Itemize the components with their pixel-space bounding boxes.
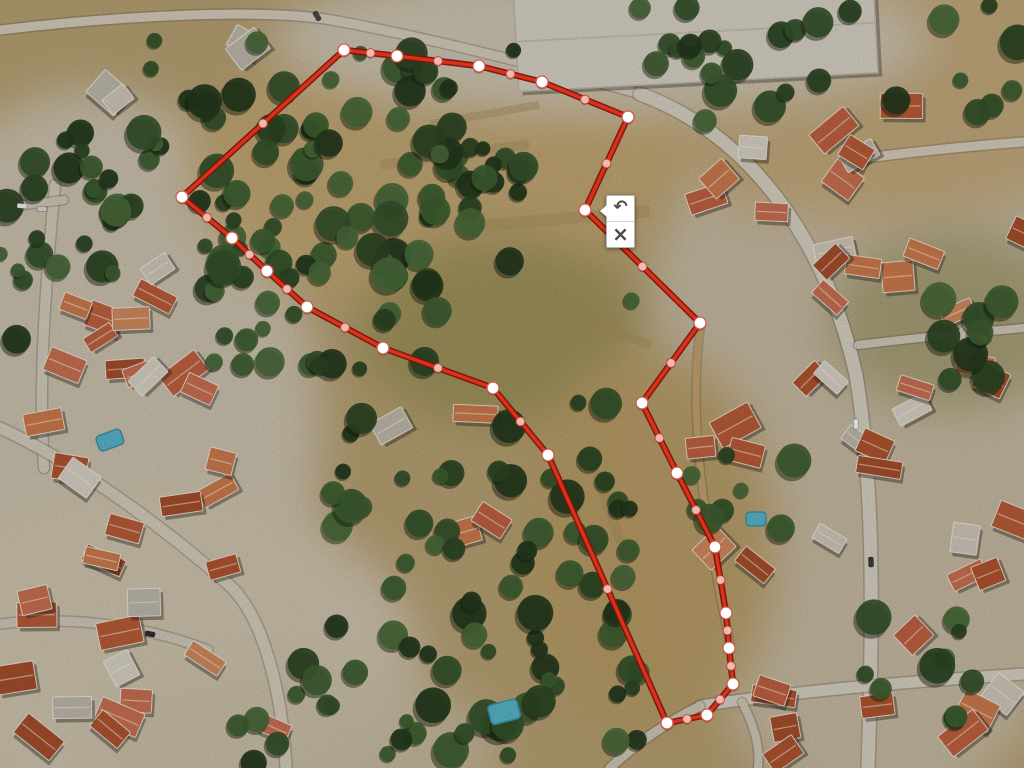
midpoint-handle[interactable] [434, 364, 443, 373]
midpoint-handle[interactable] [283, 285, 292, 294]
undo-arrow-icon: ↶ [613, 199, 627, 216]
close-icon: × [612, 224, 629, 244]
midpoint-handle[interactable] [366, 49, 375, 58]
vertex-handle[interactable] [261, 265, 273, 277]
vertex-handle[interactable] [536, 76, 548, 88]
midpoint-handle[interactable] [581, 95, 590, 104]
undo-button[interactable]: ↶ [607, 196, 634, 221]
vertex-handle[interactable] [226, 232, 238, 244]
vertex-handle[interactable] [701, 709, 713, 721]
aerial-imagery [0, 0, 1024, 768]
delete-vertex-button[interactable]: × [607, 222, 634, 247]
vertex-handle[interactable] [338, 44, 350, 56]
vertex-handle[interactable] [579, 204, 591, 216]
midpoint-handle[interactable] [434, 57, 443, 66]
vertex-handle[interactable] [473, 60, 485, 72]
vertex-handle[interactable] [176, 191, 188, 203]
vertex-handle[interactable] [661, 717, 673, 729]
vertex-handle[interactable] [377, 342, 389, 354]
midpoint-handle[interactable] [506, 70, 515, 79]
midpoint-handle[interactable] [341, 323, 350, 332]
toolbar-pointer-arrow [600, 205, 607, 217]
midpoint-handle[interactable] [638, 262, 647, 271]
vertex-handle[interactable] [487, 382, 499, 394]
vertex-handle[interactable] [723, 642, 735, 654]
vertex-toolbar: ↶ × [606, 195, 635, 248]
vertex-handle[interactable] [720, 607, 732, 619]
vertex-handle[interactable] [709, 541, 721, 553]
imagery-noise-texture [0, 0, 1024, 768]
midpoint-handle[interactable] [716, 576, 725, 585]
vertex-handle[interactable] [301, 301, 313, 313]
midpoint-handle[interactable] [692, 506, 701, 515]
vertex-handle[interactable] [622, 111, 634, 123]
vertex-handle[interactable] [636, 397, 648, 409]
vertex-handle[interactable] [727, 678, 739, 690]
midpoint-handle[interactable] [603, 585, 612, 594]
midpoint-handle[interactable] [655, 434, 664, 443]
midpoint-handle[interactable] [259, 119, 268, 128]
satellite-map-viewport[interactable]: ↶ × [0, 0, 1024, 768]
midpoint-handle[interactable] [245, 250, 254, 259]
midpoint-handle[interactable] [716, 695, 725, 704]
midpoint-handle[interactable] [516, 417, 525, 426]
vertex-handle[interactable] [542, 449, 554, 461]
midpoint-handle[interactable] [683, 715, 692, 724]
vertex-handle[interactable] [391, 50, 403, 62]
midpoint-handle[interactable] [723, 626, 732, 635]
midpoint-handle[interactable] [727, 662, 736, 671]
midpoint-handle[interactable] [667, 359, 676, 368]
midpoint-handle[interactable] [203, 213, 212, 222]
vertex-handle[interactable] [694, 317, 706, 329]
midpoint-handle[interactable] [602, 159, 611, 168]
vertex-handle[interactable] [671, 467, 683, 479]
